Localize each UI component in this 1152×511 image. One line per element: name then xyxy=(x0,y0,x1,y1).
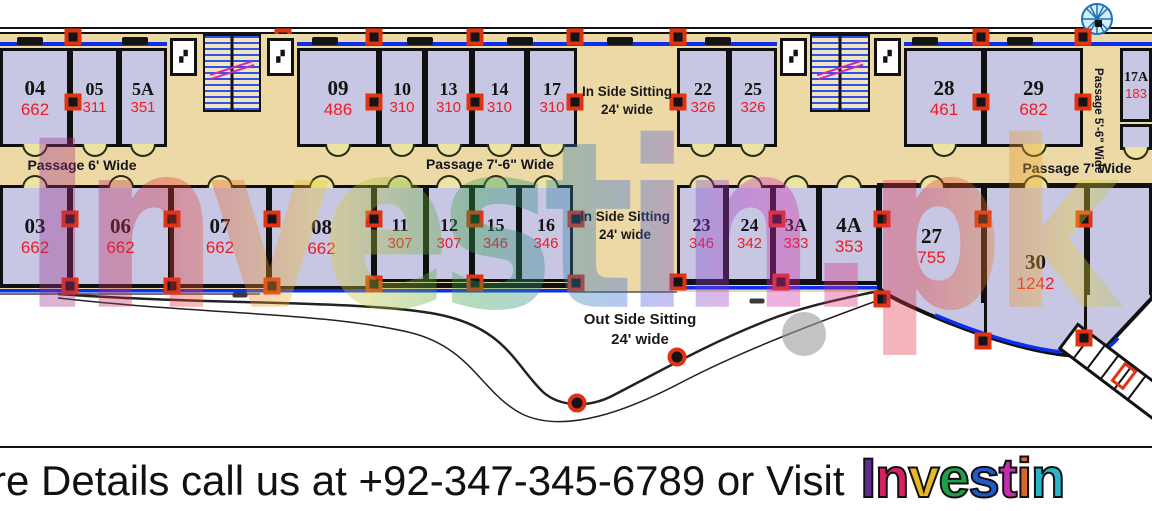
contact-footer: re Details call us at +92-347-345-6789 o… xyxy=(0,446,1152,511)
room-area: 486 xyxy=(324,101,352,118)
room-12: 12307 xyxy=(426,185,472,282)
elevator-icon xyxy=(267,38,294,76)
room-10: 10310 xyxy=(379,48,425,147)
room-number: 13 xyxy=(440,80,458,98)
room-04: 04662 xyxy=(0,48,70,147)
room-17A: 17A183 xyxy=(1120,48,1152,122)
room-area: 461 xyxy=(930,101,958,118)
door-arc xyxy=(836,175,862,188)
column-marker xyxy=(1075,29,1092,46)
room-area: 346 xyxy=(483,236,508,251)
room-area: 183 xyxy=(1125,87,1147,100)
column-marker xyxy=(264,278,281,295)
room-07: 07662 xyxy=(171,185,269,287)
room-27: 27755 xyxy=(879,185,984,303)
room-16: 16346 xyxy=(519,185,573,282)
room-area: 662 xyxy=(106,239,134,256)
room-area: 310 xyxy=(539,100,564,115)
room-29: 29682 xyxy=(984,48,1083,147)
watermark-dot xyxy=(782,312,826,356)
room-number: 15 xyxy=(487,216,505,234)
room-number: 25 xyxy=(744,80,762,98)
window-sill-marker xyxy=(912,37,938,45)
room-area: 311 xyxy=(83,100,107,115)
door-arc xyxy=(309,175,335,188)
outside-sitting: Out Side Sitting 24' wide xyxy=(555,310,725,351)
window-label-marker xyxy=(750,299,765,304)
column-marker xyxy=(366,211,383,228)
passage-7-label: Passage 7' Wide xyxy=(1003,160,1151,176)
room-number: 04 xyxy=(25,78,46,99)
elevator-icon xyxy=(780,38,807,76)
column-marker xyxy=(62,278,79,295)
room-area: 353 xyxy=(835,238,863,255)
window-sill-marker xyxy=(1007,37,1033,45)
room-number: 28 xyxy=(934,78,955,99)
room-3A: 3A333 xyxy=(773,185,819,282)
passage-5-6-label: Passage 5'-6" Wide xyxy=(1092,58,1104,183)
door-arc xyxy=(483,175,509,188)
column-marker xyxy=(973,94,990,111)
window-label-marker xyxy=(233,293,248,298)
column-marker xyxy=(973,29,990,46)
column-marker xyxy=(164,278,181,295)
contact-text: re Details call us at +92-347-345-6789 o… xyxy=(0,457,845,505)
room-06: 06662 xyxy=(70,185,171,287)
room-area: 333 xyxy=(783,236,808,251)
column-marker xyxy=(567,29,584,46)
door-arc xyxy=(689,175,715,188)
logo-letter: i xyxy=(1016,450,1031,506)
inside-sitting-top: In Side Sitting 24' wide xyxy=(575,83,679,119)
room-area: 351 xyxy=(130,100,155,115)
column-marker xyxy=(670,274,687,291)
column-marker xyxy=(1076,330,1093,347)
room-number: 16 xyxy=(537,216,555,234)
door-arc xyxy=(740,144,766,157)
room-area: 310 xyxy=(436,100,461,115)
door-arc xyxy=(130,144,156,157)
room-number: 17A xyxy=(1124,71,1148,85)
column-marker xyxy=(467,29,484,46)
room-number: 12 xyxy=(440,216,458,234)
logo-letter: s xyxy=(969,450,999,506)
stair-elevator-core-right xyxy=(777,34,904,152)
room-area: 307 xyxy=(387,236,412,251)
door-arc xyxy=(389,144,415,157)
room-number: 06 xyxy=(110,216,131,237)
column-marker xyxy=(467,211,484,228)
room-area: 310 xyxy=(389,100,414,115)
room-number: 08 xyxy=(311,217,332,238)
room-area: 346 xyxy=(689,236,714,251)
inside-sitting-bottom: In Side Sitting 24' wide xyxy=(571,208,679,244)
door-arc xyxy=(919,175,945,188)
window-sill-marker xyxy=(705,37,731,45)
room-25: 25326 xyxy=(729,48,777,147)
column-marker xyxy=(264,211,281,228)
door-arc xyxy=(1123,147,1149,160)
column-marker xyxy=(975,211,992,228)
room-5A: 5A351 xyxy=(119,48,167,147)
logo-letter: v xyxy=(908,450,938,506)
door-arc xyxy=(22,144,48,157)
logo-letter: I xyxy=(861,450,876,506)
room-area: 662 xyxy=(206,239,234,256)
staircase-icon xyxy=(203,34,261,112)
column-marker xyxy=(366,29,383,46)
room-number: 5A xyxy=(132,80,154,98)
room-number: 10 xyxy=(393,80,411,98)
column-marker xyxy=(769,211,786,228)
room-number: 05 xyxy=(86,80,104,98)
column-marker xyxy=(670,29,687,46)
logo-letter: n xyxy=(875,450,908,506)
room-area: 755 xyxy=(917,249,945,266)
column-marker xyxy=(975,333,992,350)
window-sill-marker xyxy=(17,37,43,45)
column-marker xyxy=(874,211,891,228)
room-area: 1242 xyxy=(1017,275,1055,292)
elevator-icon xyxy=(874,38,901,76)
staircase-icon xyxy=(810,34,870,112)
room-number: 03 xyxy=(25,216,46,237)
door-arc xyxy=(931,144,957,157)
room-number: 09 xyxy=(328,78,349,99)
room-4A: 4A353 xyxy=(819,185,879,284)
column-marker xyxy=(1076,211,1093,228)
room-number: 24 xyxy=(741,216,759,234)
investin-logo: Investin xyxy=(861,450,1065,506)
window-sill-marker xyxy=(507,37,533,45)
room-area: 326 xyxy=(740,100,765,115)
door-arc xyxy=(737,175,763,188)
room-number: 17 xyxy=(543,80,561,98)
room-number: 11 xyxy=(391,216,408,234)
room-area: 682 xyxy=(1019,101,1047,118)
door-arc xyxy=(436,175,462,188)
room-area: 346 xyxy=(533,236,558,251)
room-number: 07 xyxy=(210,216,231,237)
passage-6-label: Passage 6' Wide xyxy=(12,157,152,173)
door-arc xyxy=(207,175,233,188)
door-arc xyxy=(533,175,559,188)
room-15: 15346 xyxy=(472,185,519,282)
room-area: 662 xyxy=(307,240,335,257)
room-area: 310 xyxy=(487,100,512,115)
room-area: 662 xyxy=(21,101,49,118)
room-number: 29 xyxy=(1023,78,1044,99)
window-sill-marker xyxy=(312,37,338,45)
room-area: 342 xyxy=(737,236,762,251)
passage-7-6-label: Passage 7'-6" Wide xyxy=(415,156,565,172)
floor-plan-flyer: 04662053115A3510948610310133101431017310… xyxy=(0,0,1152,511)
room-number: 14 xyxy=(491,80,509,98)
room-number: 3A xyxy=(785,216,807,234)
room-number: 30 xyxy=(1025,252,1046,273)
window-sill-marker xyxy=(122,37,148,45)
room-number: 4A xyxy=(836,215,862,236)
door-arc xyxy=(1021,144,1047,157)
door-frame-marker xyxy=(1110,362,1137,391)
door-arc xyxy=(1023,175,1049,188)
column-marker xyxy=(164,211,181,228)
room-13: 13310 xyxy=(425,48,472,147)
room-number: 22 xyxy=(694,80,712,98)
room-area: 307 xyxy=(436,236,461,251)
room-03: 03662 xyxy=(0,185,70,287)
room-11: 11307 xyxy=(374,185,426,282)
column-marker xyxy=(65,94,82,111)
room xyxy=(1087,185,1152,295)
door-arc xyxy=(387,175,413,188)
column-marker xyxy=(568,275,585,292)
room-30: 301242 xyxy=(984,185,1087,335)
elevator-icon xyxy=(170,38,197,76)
room-08: 08662 xyxy=(269,185,374,289)
column-marker xyxy=(467,94,484,111)
room-23: 23346 xyxy=(677,185,726,282)
door-arc xyxy=(690,144,716,157)
door-arc xyxy=(108,175,134,188)
room-number: 27 xyxy=(921,226,942,247)
window-sill-marker xyxy=(607,37,633,45)
room-area: 326 xyxy=(690,100,715,115)
round-column-marker xyxy=(568,394,587,413)
room-area: 662 xyxy=(21,239,49,256)
room-24: 24342 xyxy=(726,185,773,282)
column-marker xyxy=(366,276,383,293)
column-marker xyxy=(1075,94,1092,111)
column-marker xyxy=(874,291,891,308)
door-arc xyxy=(22,175,48,188)
door-arc xyxy=(783,175,809,188)
column-marker xyxy=(62,211,79,228)
door-arc xyxy=(82,144,108,157)
column-marker xyxy=(366,94,383,111)
door-arc xyxy=(325,144,351,157)
logo-letter: t xyxy=(999,450,1017,506)
column-marker xyxy=(65,29,82,46)
room-number: 23 xyxy=(693,216,711,234)
stair-elevator-core-left xyxy=(167,34,297,152)
window-sill-marker xyxy=(407,37,433,45)
logo-letter: e xyxy=(938,450,968,506)
column-marker xyxy=(773,274,790,291)
logo-letter: n xyxy=(1031,450,1064,506)
column-marker xyxy=(467,275,484,292)
